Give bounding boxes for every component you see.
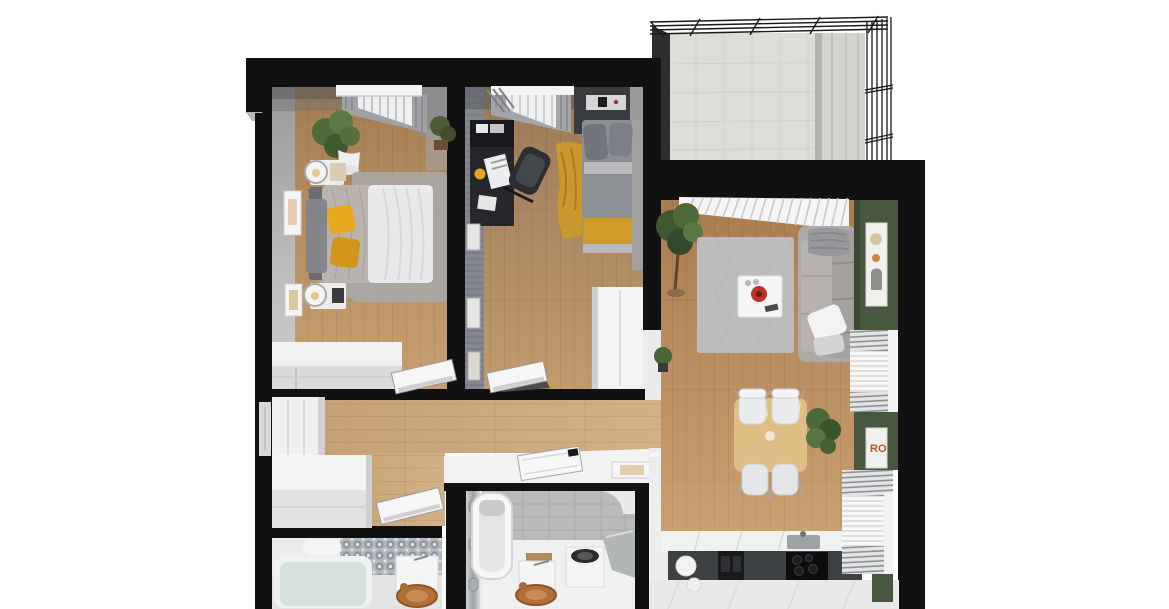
svg-text:RO: RO xyxy=(870,443,887,455)
